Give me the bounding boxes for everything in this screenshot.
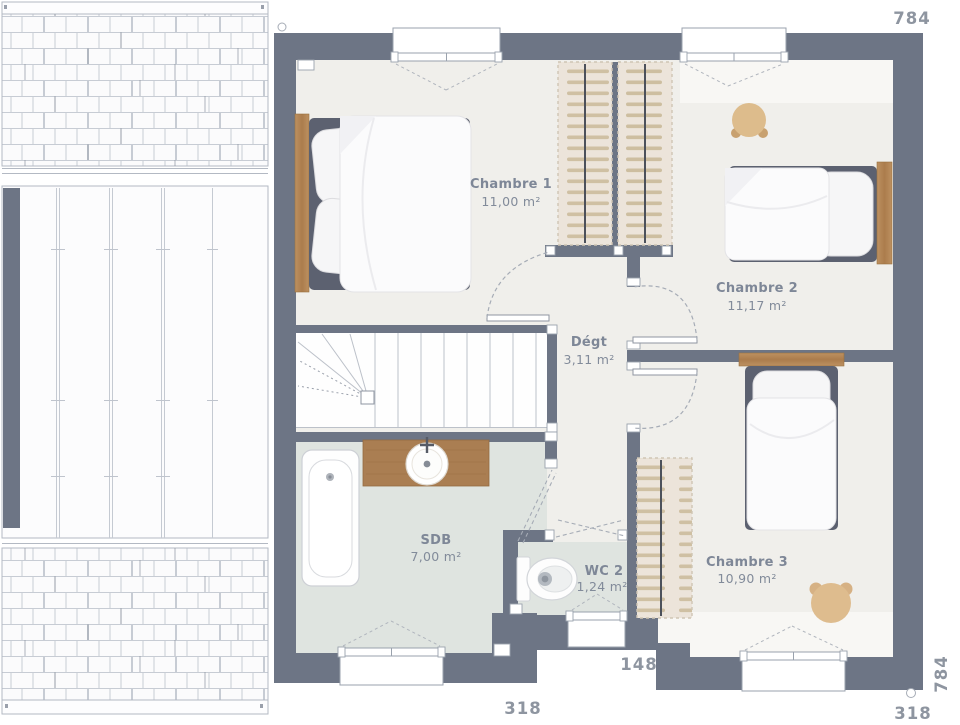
dimension-bottom-left-width: 318 [504, 699, 541, 718]
floor-plan-canvas: Chambre 1 11,00 m² Chambre 2 11,17 m² Dé… [0, 0, 960, 725]
bed-single-chambre2 [725, 162, 892, 264]
wall-step-column-2 [656, 643, 690, 690]
bathtub [302, 450, 359, 586]
wardrobe-chambre1 [558, 62, 612, 245]
duvet [747, 398, 836, 530]
room-label-chambre1: Chambre 1 [470, 177, 552, 192]
door-leaf-chambre2 [633, 337, 697, 343]
room-area-chambre2: 11,17 m² [727, 298, 786, 313]
wall-hall-stairs [547, 333, 557, 433]
wall-left [274, 33, 296, 683]
stair-newel-post [361, 391, 374, 404]
room-label-chambre2: Chambre 2 [716, 281, 798, 296]
dimension-right-height: 784 [932, 655, 951, 692]
bed-single-chambre3 [739, 353, 844, 530]
wall-wardrobe-divider [612, 62, 618, 245]
room-label-degt: Dégt [571, 335, 607, 350]
room-area-wc2: 1,24 m² [576, 579, 627, 594]
survey-marker-top-left [278, 23, 286, 31]
door-leaf-chambre1 [487, 315, 549, 321]
room-area-sdb: 7,00 m² [410, 549, 461, 564]
dimension-top-width: 784 [893, 9, 930, 28]
floor-light-strip-chambre2 [680, 60, 893, 103]
room-area-chambre1: 11,00 m² [481, 194, 540, 209]
stairs [296, 333, 547, 428]
wall-right [893, 33, 923, 690]
room-label-sdb: SDB [421, 533, 452, 548]
wardrobe-chambre2 [618, 62, 672, 245]
room-label-chambre3: Chambre 3 [706, 555, 788, 570]
wall-below-wardrobes [545, 245, 673, 257]
headboard [739, 353, 844, 366]
wall-top [274, 33, 923, 60]
adjacent-roof-bottom [2, 548, 268, 714]
wall-stairs-top [296, 325, 557, 333]
floor-light-strip-chambre3 [658, 612, 893, 657]
adjacent-roof-top [2, 2, 268, 174]
door-leaf-chambre3 [633, 369, 697, 375]
wardrobe-chambre3 [637, 458, 692, 618]
room-area-degt: 3,11 m² [563, 352, 614, 367]
room-label-wc2: WC 2 [585, 564, 624, 579]
duvet [340, 116, 471, 292]
toilet [517, 557, 577, 601]
adjacent-roof-panels [2, 186, 268, 544]
room-area-chambre3: 10,90 m² [717, 571, 776, 586]
headboard [295, 114, 309, 292]
bed-double-chambre1 [295, 114, 471, 292]
survey-marker-bottom-right [907, 689, 916, 698]
dimension-recess-width: 148 [620, 655, 657, 674]
dimension-bottom-right-width: 318 [894, 704, 931, 723]
vanity-sink [363, 437, 489, 486]
floor-plan-screenshot: Chambre 1 11,00 m² Chambre 2 11,17 m² Dé… [0, 0, 960, 725]
headboard [877, 162, 892, 264]
